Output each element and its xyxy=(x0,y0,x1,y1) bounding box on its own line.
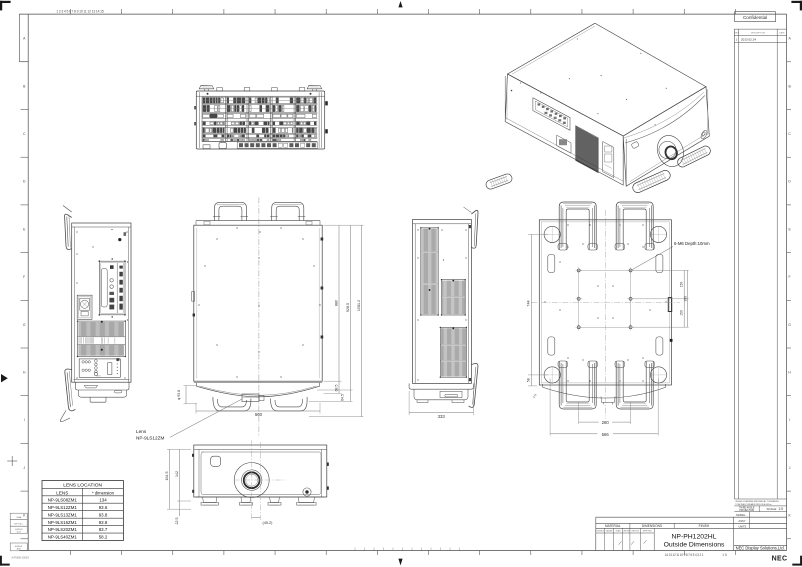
svg-text:1 2 3 4 5 6 7 8 9 10 11 12 13: 1 2 3 4 5 6 7 8 9 10 11 12 13 14 15 xyxy=(56,10,104,14)
svg-text:LENS: LENS xyxy=(56,490,68,495)
svg-text:CHROME: CHROME xyxy=(623,530,630,532)
svg-text:83.7: 83.7 xyxy=(99,527,108,532)
svg-text:DESCRIPTION: DESCRIPTION xyxy=(751,33,766,35)
svg-text:F: F xyxy=(789,275,791,279)
svg-text:MODEL: MODEL xyxy=(736,513,746,517)
svg-text:I: I xyxy=(789,418,790,422)
svg-text:280: 280 xyxy=(602,420,610,425)
svg-text:2013.02.24: 2013.02.24 xyxy=(741,38,756,42)
svg-text:3-AA: 3-AA xyxy=(16,516,21,519)
svg-text:150: 150 xyxy=(680,310,684,316)
svg-text:660: 660 xyxy=(255,412,263,417)
svg-text:A-08: A-08 xyxy=(17,548,21,551)
svg-text:NP-9LS12ZM1: NP-9LS12ZM1 xyxy=(48,505,78,510)
svg-text:NP-9LS08ZM1: NP-9LS08ZM1 xyxy=(48,497,78,502)
svg-text:6-M6 Depth:10mm: 6-M6 Depth:10mm xyxy=(674,241,710,246)
svg-text:NP-PH1202HL: NP-PH1202HL xyxy=(672,534,717,541)
svg-text:DATE: DATE xyxy=(779,32,785,35)
svg-text:NEC: NEC xyxy=(772,555,788,562)
svg-text:NP-9LS40ZM1: NP-9LS40ZM1 xyxy=(48,535,78,540)
svg-text:MATERIAL: MATERIAL xyxy=(605,524,621,528)
svg-text:566: 566 xyxy=(602,432,610,437)
svg-text:NP-9LS13ZM1: NP-9LS13ZM1 xyxy=(48,512,78,517)
svg-text:93.8: 93.8 xyxy=(99,512,108,517)
svg-text:58.2: 58.2 xyxy=(99,535,108,540)
svg-text:UNLESS OTHERWISE SPECIFIED ALL: UNLESS OTHERWISE SPECIFIED ALL TOLERANCE… xyxy=(735,500,779,503)
svg-text:LENS LOCATION: LENS LOCATION xyxy=(63,483,102,489)
svg-text:DIMENSIONS: DIMENSIONS xyxy=(642,524,662,528)
svg-text:Outside Dimensions: Outside Dimensions xyxy=(664,542,725,549)
svg-text:B-23: B-23 xyxy=(17,532,21,534)
svg-text:93.6: 93.6 xyxy=(99,505,108,510)
svg-text:F: F xyxy=(23,275,25,279)
svg-text:880: 880 xyxy=(334,300,338,306)
svg-text:NP-9LS20ZM1: NP-9LS20ZM1 xyxy=(48,527,78,532)
svg-text:FINISH: FINISH xyxy=(699,524,710,528)
svg-text:REV: REV xyxy=(734,33,739,35)
svg-text:22.5: 22.5 xyxy=(175,518,179,525)
svg-text:58: 58 xyxy=(527,378,531,382)
svg-text:1081.2: 1081.2 xyxy=(357,300,361,311)
svg-text:J: J xyxy=(789,466,791,470)
svg-text:928.5: 928.5 xyxy=(346,303,350,312)
svg-text:68.5: 68.5 xyxy=(334,385,338,392)
svg-text:φ 93.8: φ 93.8 xyxy=(177,390,181,400)
svg-text:333: 333 xyxy=(438,414,446,419)
svg-text:300: 300 xyxy=(683,296,687,302)
svg-text:ASSY: ASSY xyxy=(739,519,746,523)
svg-text:1 5: 1 5 xyxy=(722,553,727,557)
svg-text:I: I xyxy=(24,418,25,422)
svg-text:MENU: MENU xyxy=(96,375,100,377)
svg-text:93.8: 93.8 xyxy=(99,520,108,525)
svg-text:NP-9LS16ZM1: NP-9LS16ZM1 xyxy=(48,520,78,525)
svg-text:150: 150 xyxy=(680,282,684,288)
svg-text:NEC Display Solutions,Ltd.: NEC Display Solutions,Ltd. xyxy=(736,545,785,550)
svg-text:Lens: Lens xyxy=(136,429,147,434)
svg-text:134: 134 xyxy=(99,497,107,502)
svg-text:M-RB-01: M-RB-01 xyxy=(15,546,23,548)
svg-text:NP-76LL: NP-76LL xyxy=(14,523,23,525)
svg-text:UNITS: UNITS xyxy=(739,524,747,528)
svg-text:A4700B-13003: A4700B-13003 xyxy=(12,556,30,560)
svg-text:G: G xyxy=(788,323,791,327)
svg-text:G: G xyxy=(23,323,26,327)
svg-text:Confidential: Confidential xyxy=(743,15,767,20)
svg-text:(45.2): (45.2) xyxy=(263,521,274,525)
svg-text:SCALE: SCALE xyxy=(767,507,777,511)
svg-text:142: 142 xyxy=(175,471,179,477)
svg-text:14 13 12 11 10 9 8 7 6 5 4 3 2: 14 13 12 11 10 9 8 7 6 5 4 3 2 1 xyxy=(665,553,704,557)
svg-text:J: J xyxy=(23,466,25,470)
svg-text:CHECKED: CHECKED xyxy=(631,530,640,532)
svg-text:* dimension: * dimension xyxy=(92,490,115,495)
svg-text:1:5: 1:5 xyxy=(779,507,784,511)
svg-text:744: 744 xyxy=(527,300,531,306)
svg-text:64.5: 64.5 xyxy=(341,394,345,401)
svg-text:164.5: 164.5 xyxy=(165,472,169,481)
svg-text:NP-9LS12ZM: NP-9LS12ZM xyxy=(136,435,164,440)
